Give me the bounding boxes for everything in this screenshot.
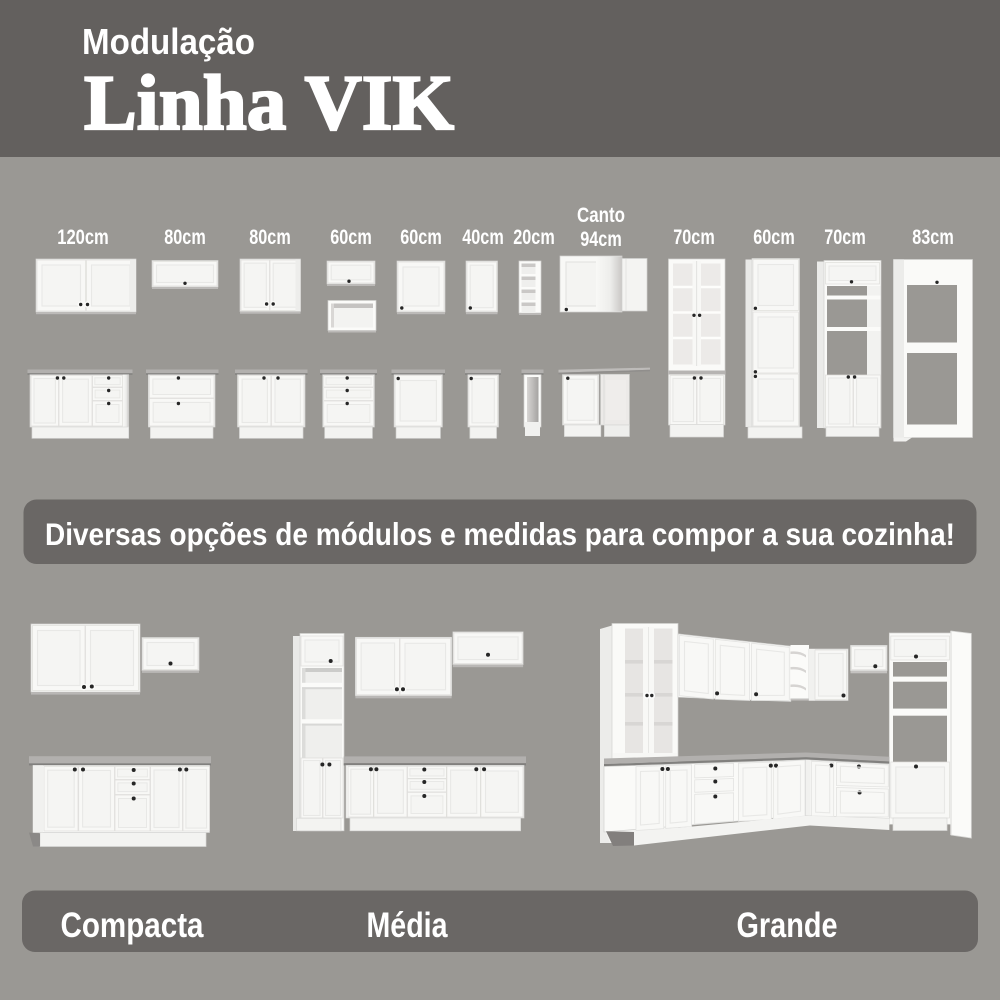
svg-text:80cm: 80cm [164,225,206,249]
svg-text:83cm: 83cm [912,225,954,249]
svg-text:70cm: 70cm [824,225,866,249]
svg-text:60cm: 60cm [753,225,795,249]
svg-text:Linha VIK: Linha VIK [84,59,454,146]
svg-text:120cm: 120cm [57,225,109,249]
svg-text:Grande: Grande [737,906,838,945]
svg-text:Modulação: Modulação [82,21,255,62]
svg-text:80cm: 80cm [249,225,291,249]
svg-text:Canto: Canto [577,203,625,227]
svg-text:70cm: 70cm [673,225,715,249]
svg-text:Média: Média [367,906,448,945]
svg-text:60cm: 60cm [400,225,442,249]
svg-text:40cm: 40cm [462,225,504,249]
svg-text:60cm: 60cm [330,225,372,249]
svg-text:20cm: 20cm [513,225,555,249]
svg-text:94cm: 94cm [580,227,622,251]
svg-text:Diversas opções de módulos e m: Diversas opções de módulos e medidas par… [45,516,955,552]
svg-text:Compacta: Compacta [61,906,204,945]
